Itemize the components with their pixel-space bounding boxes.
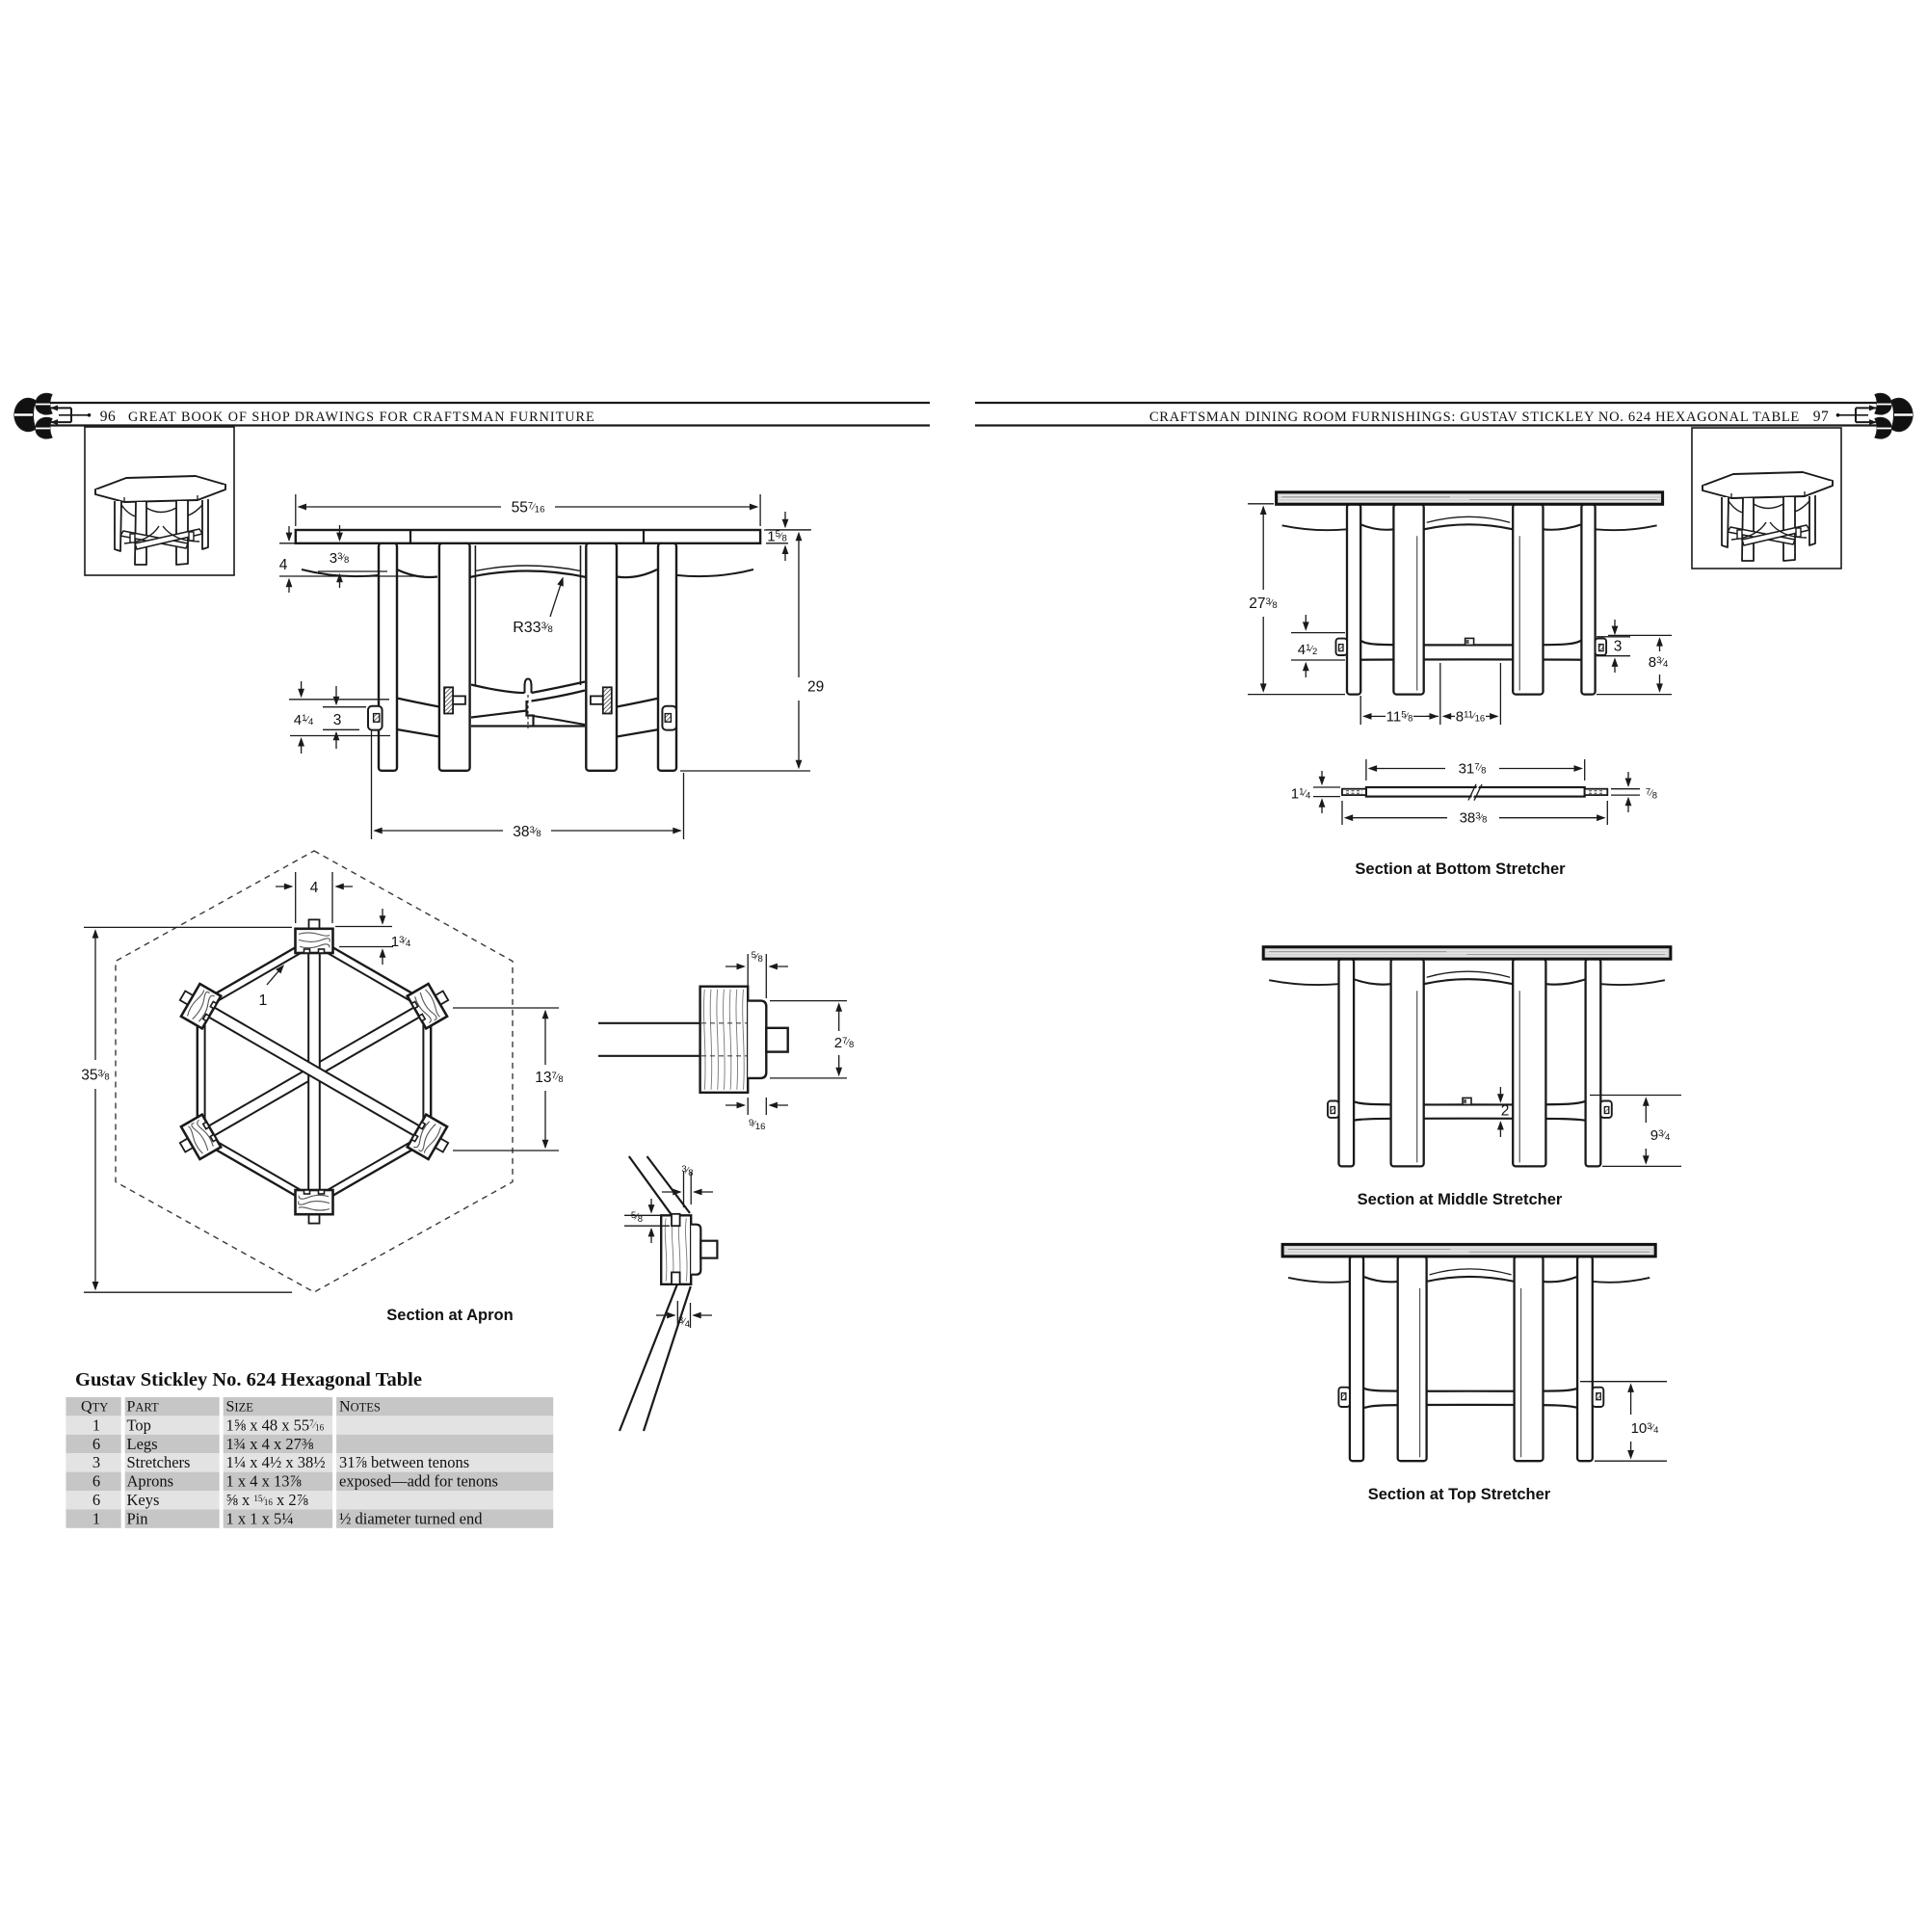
svg-text:Stretchers: Stretchers bbox=[127, 1453, 191, 1471]
svg-text:PART: PART bbox=[127, 1399, 160, 1416]
svg-text:1: 1 bbox=[259, 992, 268, 1009]
svg-text:4: 4 bbox=[279, 557, 288, 573]
svg-text:3: 3 bbox=[92, 1453, 100, 1471]
svg-text:½ diameter turned end: ½ diameter turned end bbox=[339, 1509, 483, 1527]
svg-text:Section at Top Stretcher: Section at Top Stretcher bbox=[1368, 1486, 1551, 1503]
svg-text:Keys: Keys bbox=[127, 1491, 160, 1509]
svg-text:3: 3 bbox=[1614, 639, 1623, 655]
svg-text:exposed—add for tenons: exposed—add for tenons bbox=[339, 1472, 498, 1491]
svg-text:29: 29 bbox=[807, 679, 824, 696]
svg-text:Pin: Pin bbox=[127, 1509, 148, 1527]
svg-text:SIZE: SIZE bbox=[226, 1399, 254, 1416]
svg-text:1: 1 bbox=[92, 1509, 100, 1527]
svg-text:1 x 1 x 5¼: 1 x 1 x 5¼ bbox=[226, 1509, 294, 1527]
svg-text:6: 6 bbox=[92, 1435, 100, 1453]
svg-text:Legs: Legs bbox=[127, 1435, 158, 1453]
svg-text:6: 6 bbox=[92, 1491, 100, 1509]
svg-text:Section at Middle Stretcher: Section at Middle Stretcher bbox=[1358, 1191, 1563, 1208]
svg-text:2: 2 bbox=[1501, 1103, 1510, 1120]
svg-text:6: 6 bbox=[92, 1472, 100, 1491]
svg-text:3: 3 bbox=[333, 712, 342, 728]
svg-text:R333⁄8: R333⁄8 bbox=[513, 620, 553, 636]
svg-text:1 x 4 x 13⅞: 1 x 4 x 13⅞ bbox=[226, 1472, 302, 1491]
svg-text:1: 1 bbox=[92, 1416, 100, 1434]
svg-text:Section at Bottom Stretcher: Section at Bottom Stretcher bbox=[1355, 860, 1566, 878]
svg-text:Gustav Stickley No. 624 Hexago: Gustav Stickley No. 624 Hexagonal Table bbox=[75, 1369, 422, 1390]
svg-text:NOTES: NOTES bbox=[339, 1399, 381, 1416]
svg-text:4: 4 bbox=[310, 880, 319, 896]
svg-text:97: 97 bbox=[1813, 409, 1830, 425]
svg-text:1¼ x 4½ x 38½: 1¼ x 4½ x 38½ bbox=[226, 1453, 326, 1471]
svg-text:96: 96 bbox=[100, 409, 117, 425]
svg-text:CRAFTSMAN DINING ROOM FURNISHI: CRAFTSMAN DINING ROOM FURNISHINGS: GUSTA… bbox=[1149, 410, 1800, 425]
svg-text:Top: Top bbox=[127, 1416, 151, 1434]
svg-text:Section at Apron: Section at Apron bbox=[386, 1307, 513, 1324]
svg-text:GREAT BOOK OF SHOP DRAWINGS FO: GREAT BOOK OF SHOP DRAWINGS FOR CRAFTSMA… bbox=[128, 410, 595, 425]
svg-text:QTY: QTY bbox=[81, 1399, 108, 1416]
svg-text:1¾ x 4 x 27⅜: 1¾ x 4 x 27⅜ bbox=[226, 1435, 314, 1453]
svg-text:Aprons: Aprons bbox=[127, 1472, 174, 1491]
svg-text:31⅞ between tenons: 31⅞ between tenons bbox=[339, 1453, 469, 1471]
